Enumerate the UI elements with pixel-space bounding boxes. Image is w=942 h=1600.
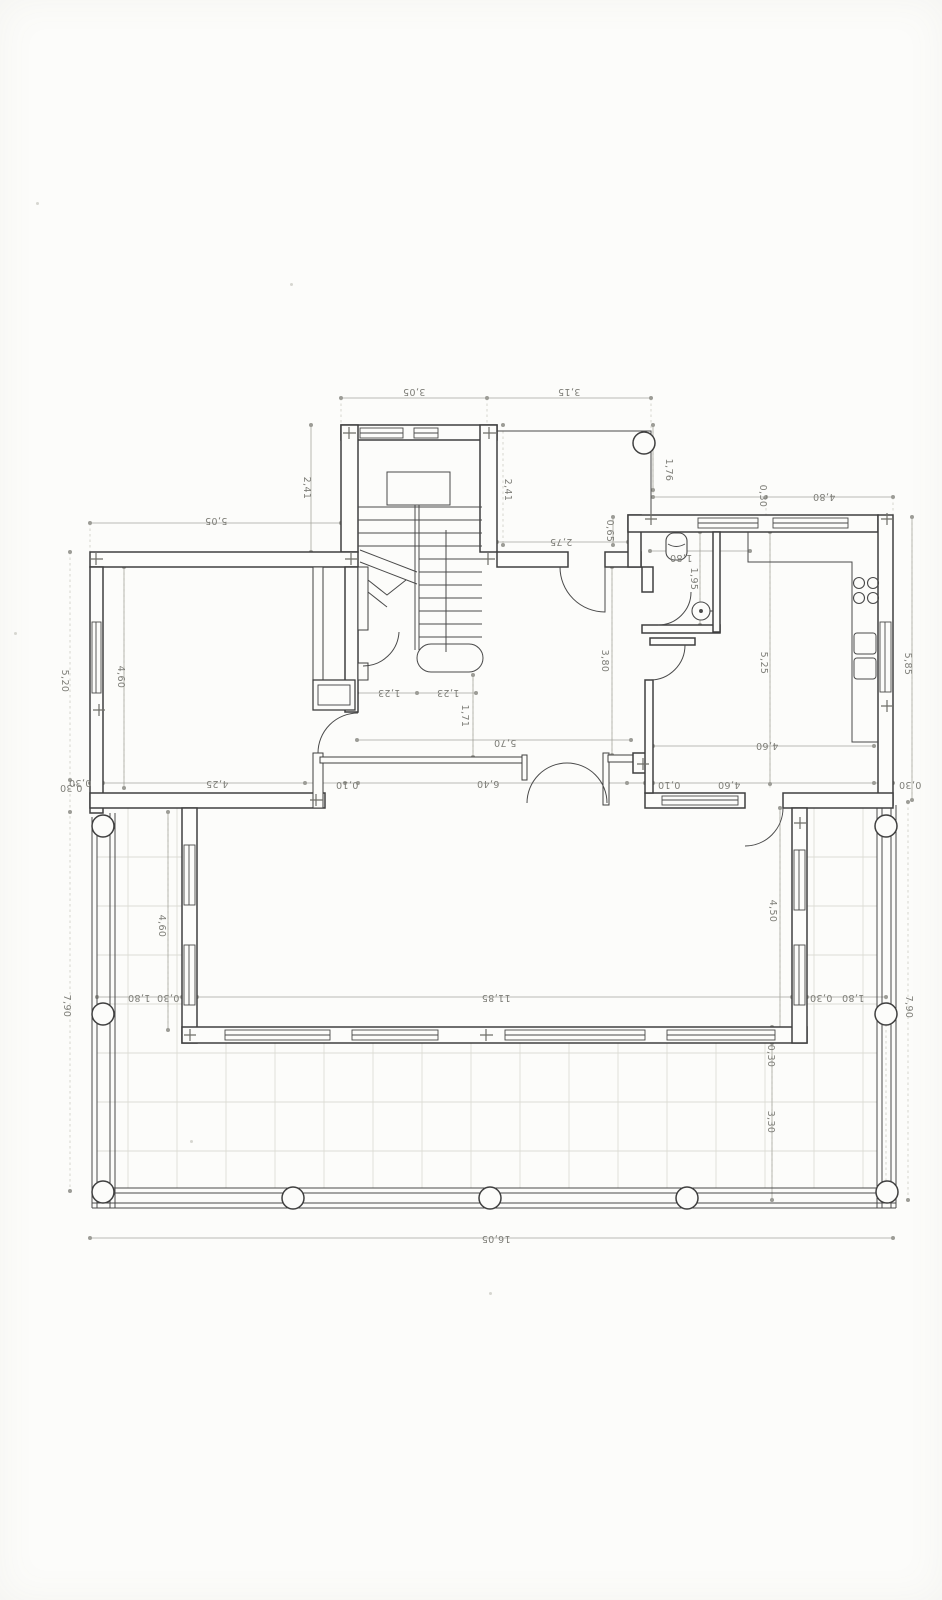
dim-label-porch-top: 3,15 bbox=[558, 386, 581, 396]
floor-plan: 3,05 3,15 2,41 2,41 1,76 0,30 4,80 0,65 … bbox=[0, 0, 942, 1600]
upper-porch bbox=[497, 431, 651, 515]
dim-label-west-lower: 7,90 bbox=[61, 995, 71, 1018]
dim-label-jog: 0,65 bbox=[604, 520, 614, 543]
dim-label-hall-top: 2,75 bbox=[550, 536, 573, 546]
dim-label-stair-top: 3,05 bbox=[403, 386, 426, 396]
wc-door-arc bbox=[658, 592, 691, 625]
dim-label-ne-offset: 0,30 bbox=[757, 485, 767, 508]
dim-label-east-upper: 5,85 bbox=[902, 653, 912, 676]
staircase bbox=[358, 472, 483, 672]
dim-label-flight-b: 1,23 bbox=[437, 687, 460, 697]
dim-label-south-wall: 0,30 bbox=[765, 1045, 775, 1068]
dim-label-nw-top: 5,05 bbox=[205, 515, 228, 525]
dim-label-total-width: 16,05 bbox=[481, 1233, 510, 1243]
scanned-floor-plan-page: 3,05 3,15 2,41 2,41 1,76 0,30 4,80 0,65 … bbox=[0, 0, 942, 1600]
sink-basin-1 bbox=[854, 633, 876, 654]
dim-label-west-upper: 5,20 bbox=[59, 670, 69, 693]
left-room-door-arc bbox=[318, 713, 358, 753]
terrace-railing bbox=[92, 805, 896, 1208]
kitchen-counter bbox=[748, 532, 878, 742]
dim-label-mid-b: 4,25 bbox=[206, 778, 229, 788]
dim-label-terrace-left-b: 0,30 bbox=[157, 992, 180, 1002]
dim-label-hall-width: 5,70 bbox=[494, 737, 517, 747]
dim-label-mid-g: 0,30 bbox=[899, 779, 922, 789]
dim-label-terrace-south: 3,30 bbox=[765, 1111, 775, 1134]
dim-label-terrace-right-a: 0,30 bbox=[810, 992, 833, 1002]
dim-label-wc-height: 1,95 bbox=[688, 568, 698, 591]
dim-label-mid-a: 0,30 bbox=[69, 777, 92, 787]
scan-speckle bbox=[489, 1292, 492, 1295]
dim-label-mid-e: 0,10 bbox=[658, 779, 681, 789]
kitchen-fixtures bbox=[748, 532, 879, 742]
porch-column bbox=[633, 432, 655, 454]
dim-label-left-room-height: 4,60 bbox=[115, 666, 125, 689]
dim-label-mid-f: 4,60 bbox=[718, 779, 741, 789]
dim-label-mid-d: 6,40 bbox=[477, 778, 500, 788]
dim-label-ne-top: 4,80 bbox=[813, 491, 836, 501]
floor-plan-drawing bbox=[0, 0, 942, 1600]
dining-door-arc bbox=[650, 645, 685, 680]
dim-label-bigroom-width: 11,85 bbox=[481, 992, 510, 1002]
understair-door-arc bbox=[363, 632, 399, 666]
dim-label-bigroom-right: 4,50 bbox=[767, 900, 777, 923]
scan-speckle bbox=[190, 1140, 193, 1143]
terrace-door-arc bbox=[745, 808, 783, 846]
dim-label-porch-left: 2,41 bbox=[502, 479, 512, 502]
dim-label-flight-a: 1,23 bbox=[378, 687, 401, 697]
dim-label-east-lower: 7,90 bbox=[903, 996, 913, 1019]
scan-speckle bbox=[14, 632, 17, 635]
scan-speckle bbox=[36, 202, 39, 205]
dim-label-bigroom-left: 4,60 bbox=[156, 915, 166, 938]
dim-label-stair-left: 2,41 bbox=[301, 477, 311, 500]
sink-basin-2 bbox=[854, 658, 876, 679]
dim-label-mid-c: 0,10 bbox=[336, 779, 359, 789]
scan-speckle bbox=[290, 283, 293, 286]
entrance-door-arc bbox=[560, 567, 605, 612]
dim-label-kitchen-height: 5,25 bbox=[758, 652, 768, 675]
stove-burners bbox=[854, 578, 879, 604]
terrace-columns bbox=[92, 815, 898, 1209]
dim-label-newel: 1,71 bbox=[459, 705, 469, 728]
dim-label-terrace-left-a: 1,80 bbox=[128, 992, 151, 1002]
dim-label-dining-width: 4,60 bbox=[756, 740, 779, 750]
dim-label-wc-width: 1,80 bbox=[670, 552, 693, 562]
dim-label-hall-height: 3,80 bbox=[599, 650, 609, 673]
dim-label-porch-right: 1,76 bbox=[663, 459, 673, 482]
dim-label-terrace-right-b: 1,80 bbox=[842, 992, 865, 1002]
